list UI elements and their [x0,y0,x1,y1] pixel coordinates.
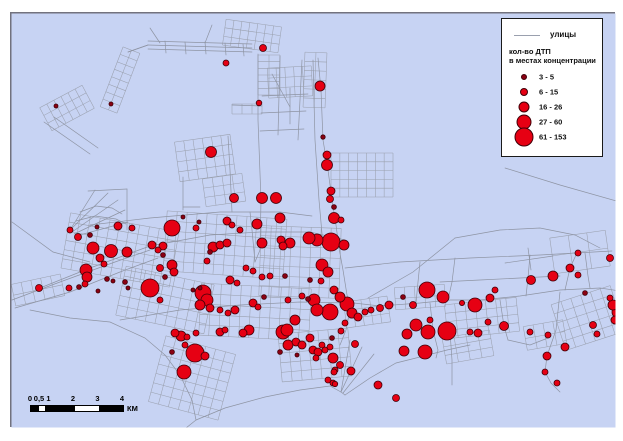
legend-class-row: 61 - 153 [502,129,602,144]
accident-marker [323,267,333,277]
accident-marker [182,342,188,348]
accident-marker [399,346,409,356]
accident-marker [75,234,82,241]
accident-marker [323,151,331,159]
accident-marker [262,295,267,300]
accident-marker [281,324,293,336]
accident-marker [123,280,128,285]
accident-marker [122,247,132,257]
accident-marker [385,301,393,309]
accident-marker [548,271,558,281]
accident-marker [485,319,491,325]
accident-marker [330,336,335,341]
accident-marker [267,273,273,279]
accident-marker [252,219,262,229]
accident-marker [54,104,58,108]
accident-marker [332,381,337,386]
accident-marker [327,344,333,350]
accident-marker [82,272,92,282]
accident-marker [148,241,156,249]
accident-marker [583,291,588,296]
accident-marker [322,304,338,320]
accident-marker [486,294,494,302]
accident-marker [278,350,283,355]
accident-map-figure: улицы кол-во ДТП в местах концентрации 3… [0,0,623,441]
legend-class-label: 6 - 15 [539,87,558,96]
accident-marker [87,242,99,254]
accident-marker [313,355,319,361]
accident-marker [201,352,209,360]
accident-marker [96,254,104,262]
legend-class-row: 3 - 5 [502,69,602,84]
accident-marker [332,205,337,210]
accident-marker [170,350,175,355]
accident-marker [419,282,435,298]
accident-marker [198,286,202,290]
accident-marker [295,353,299,357]
accident-marker [566,264,574,272]
accident-marker [225,310,231,316]
map-legend: улицы кол-во ДТП в местах концентрации 3… [501,18,603,157]
accident-marker [223,239,231,247]
accident-marker [257,193,268,204]
accident-marker [418,345,432,359]
accident-marker [438,322,456,340]
accident-marker [66,285,72,291]
accident-marker [82,281,88,287]
accident-marker [315,81,325,91]
accident-marker [298,341,306,349]
accident-marker [331,369,337,375]
accident-marker [77,285,82,290]
accident-marker [126,286,130,290]
accident-marker [239,329,247,337]
legend-title: кол-во ДТП в местах концентрации [509,47,596,65]
accident-marker [527,329,533,335]
accident-marker [306,297,311,302]
accident-marker [255,304,261,310]
accident-marker [377,305,384,312]
legend-class-label: 61 - 153 [539,132,567,141]
accident-marker [96,289,100,293]
accident-marker [141,279,159,297]
accident-marker [401,295,406,300]
accident-marker [197,220,201,224]
accident-marker [109,102,113,106]
accident-marker [114,222,122,230]
accident-marker [171,329,179,337]
accident-marker [311,304,323,316]
accident-marker [155,247,161,253]
accident-marker [474,329,482,337]
accident-marker [594,331,600,337]
accident-marker [283,274,288,279]
accident-marker [303,232,315,244]
accident-size-symbol-1 [521,74,527,80]
legend-streets-label: улицы [550,30,576,39]
accident-marker [161,253,166,258]
accident-marker [545,332,551,338]
accident-marker [186,344,204,362]
accident-marker [275,213,285,223]
accident-marker [342,320,348,326]
accident-marker [328,353,338,363]
accident-marker [318,278,324,284]
accident-marker [607,255,614,262]
accident-marker [352,341,359,348]
accident-marker [206,147,217,158]
accident-marker [191,288,195,292]
accident-marker [299,293,305,299]
accident-marker [204,258,210,264]
accident-marker [330,286,338,294]
accident-marker [354,313,362,321]
legend-class-label: 27 - 60 [539,117,562,126]
accident-marker [338,328,344,334]
accident-size-symbol-5 [515,127,534,146]
accident-marker [467,329,473,335]
accident-marker [327,196,334,203]
accident-marker [459,300,464,305]
accident-marker [259,274,265,280]
accident-marker [181,215,185,219]
accident-marker [170,268,178,276]
accident-marker [308,278,313,283]
accident-marker [437,291,449,303]
accident-marker [327,187,335,195]
accident-marker [339,240,349,250]
accident-marker [230,194,239,203]
accident-marker [217,307,223,313]
accident-marker [368,307,374,313]
legend-size-classes: 3 - 5 6 - 15 16 - 26 27 - 60 61 - 153 [502,69,602,144]
accident-marker [337,362,344,369]
accident-marker [206,304,214,312]
accident-marker [177,365,191,379]
accident-marker [257,238,267,248]
accident-marker [260,45,267,52]
accident-marker [105,277,110,282]
accident-marker [554,380,560,386]
street-line-symbol [514,35,540,36]
accident-marker [393,395,400,402]
accident-marker [193,330,199,336]
legend-streets-row: улицы [512,30,596,40]
accident-marker [184,334,190,340]
accident-marker [374,381,382,389]
accident-marker [157,297,163,303]
accident-marker [101,261,107,267]
accident-marker [329,213,340,224]
accident-marker [226,276,234,284]
accident-marker [575,250,581,256]
accident-marker [321,135,325,139]
accident-marker [362,309,368,315]
accident-marker [95,225,99,229]
accident-marker [338,217,344,223]
accident-marker [402,329,412,339]
accident-marker [410,319,422,331]
accident-marker [611,316,619,324]
accident-marker [468,298,482,312]
accident-marker [492,287,498,293]
accident-marker [427,317,433,323]
accident-marker [234,280,240,286]
accident-marker [500,322,509,331]
accident-marker [306,334,314,342]
accident-marker [250,268,256,274]
accident-marker [193,225,199,231]
accident-marker [237,227,243,233]
accident-size-symbol-3 [519,101,530,112]
accident-marker [322,233,340,251]
accident-marker [67,227,73,233]
accident-marker [111,279,115,283]
accident-marker [36,285,43,292]
accident-marker [290,315,300,325]
accident-marker [561,343,569,351]
accident-marker [283,340,293,350]
accident-marker [163,275,168,280]
accident-marker [271,193,282,204]
accident-marker [223,60,229,66]
accident-marker [243,265,249,271]
accident-marker [527,276,536,285]
accident-marker [129,225,135,231]
accident-marker [229,222,235,228]
legend-class-row: 16 - 26 [502,99,602,114]
legend-title-line1: кол-во ДТП [509,47,596,56]
accident-marker [347,367,355,375]
accident-marker [575,272,581,278]
accident-marker [105,245,118,258]
legend-class-label: 16 - 26 [539,102,562,111]
accident-marker [164,220,180,236]
accident-marker [157,265,164,272]
accident-marker [543,352,551,360]
accident-marker [590,322,597,329]
accident-marker [410,302,417,309]
accident-marker [88,233,93,238]
accident-marker [195,300,205,310]
accident-marker [279,242,287,250]
accident-marker [319,342,325,348]
accident-marker [256,100,262,106]
accident-marker [421,325,435,339]
accident-marker [285,297,291,303]
legend-class-row: 27 - 60 [502,114,602,129]
accident-marker [208,250,213,255]
legend-class-row: 6 - 15 [502,84,602,99]
accident-marker [222,327,228,333]
accident-marker [607,295,613,301]
accident-size-symbol-2 [520,88,528,96]
accident-marker [322,160,333,171]
accident-marker [231,306,239,314]
legend-class-label: 3 - 5 [539,72,554,81]
accident-marker [608,300,618,310]
accident-marker [542,369,548,375]
legend-title-line2: в местах концентрации [509,56,596,65]
